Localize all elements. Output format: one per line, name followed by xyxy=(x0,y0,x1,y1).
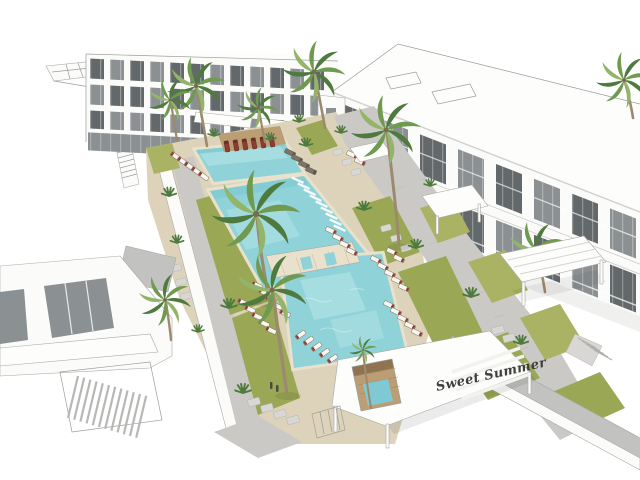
rendering-canvas: Sweet Summer xyxy=(0,0,640,480)
picture-window xyxy=(44,278,114,338)
picture-window xyxy=(0,289,28,344)
canopy-post xyxy=(386,424,389,448)
resort-rendering: Sweet Summer xyxy=(0,0,640,480)
